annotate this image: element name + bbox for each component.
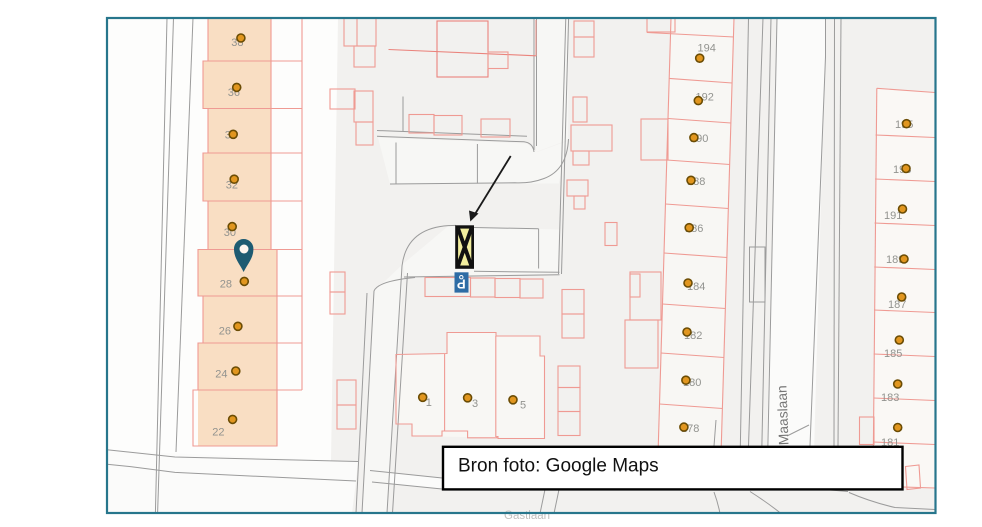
svg-text:185: 185 [884, 348, 902, 360]
svg-text:3: 3 [472, 398, 478, 410]
svg-text:183: 183 [881, 392, 899, 404]
svg-text:26: 26 [219, 326, 231, 338]
svg-text:Bron foto: Google Maps: Bron foto: Google Maps [458, 456, 659, 477]
svg-text:5: 5 [520, 399, 526, 411]
svg-text:194: 194 [698, 43, 716, 55]
svg-text:24: 24 [215, 369, 227, 381]
svg-text:22: 22 [212, 427, 224, 439]
svg-text:Maaslaan: Maaslaan [774, 385, 791, 445]
svg-text:Gastlaan: Gastlaan [504, 510, 550, 522]
svg-text:28: 28 [220, 279, 232, 291]
